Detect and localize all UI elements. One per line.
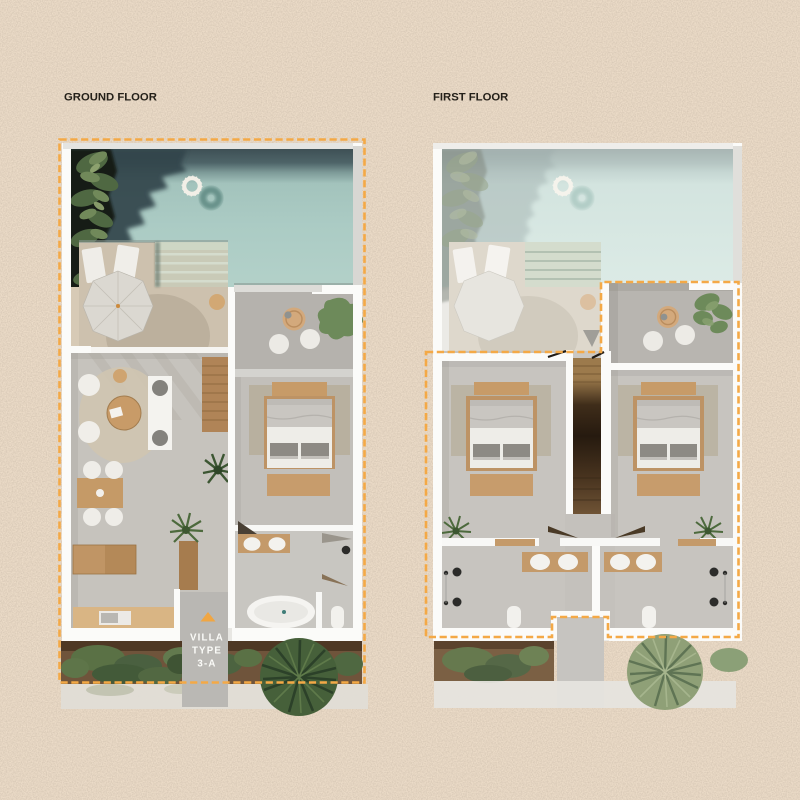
svg-text:TYPE: TYPE bbox=[192, 646, 222, 657]
svg-text:FIRST FLOOR: FIRST FLOOR bbox=[433, 92, 508, 104]
svg-text:VILLA: VILLA bbox=[190, 633, 224, 644]
svg-text:3-A: 3-A bbox=[197, 659, 216, 670]
svg-text:GROUND FLOOR: GROUND FLOOR bbox=[64, 92, 157, 104]
